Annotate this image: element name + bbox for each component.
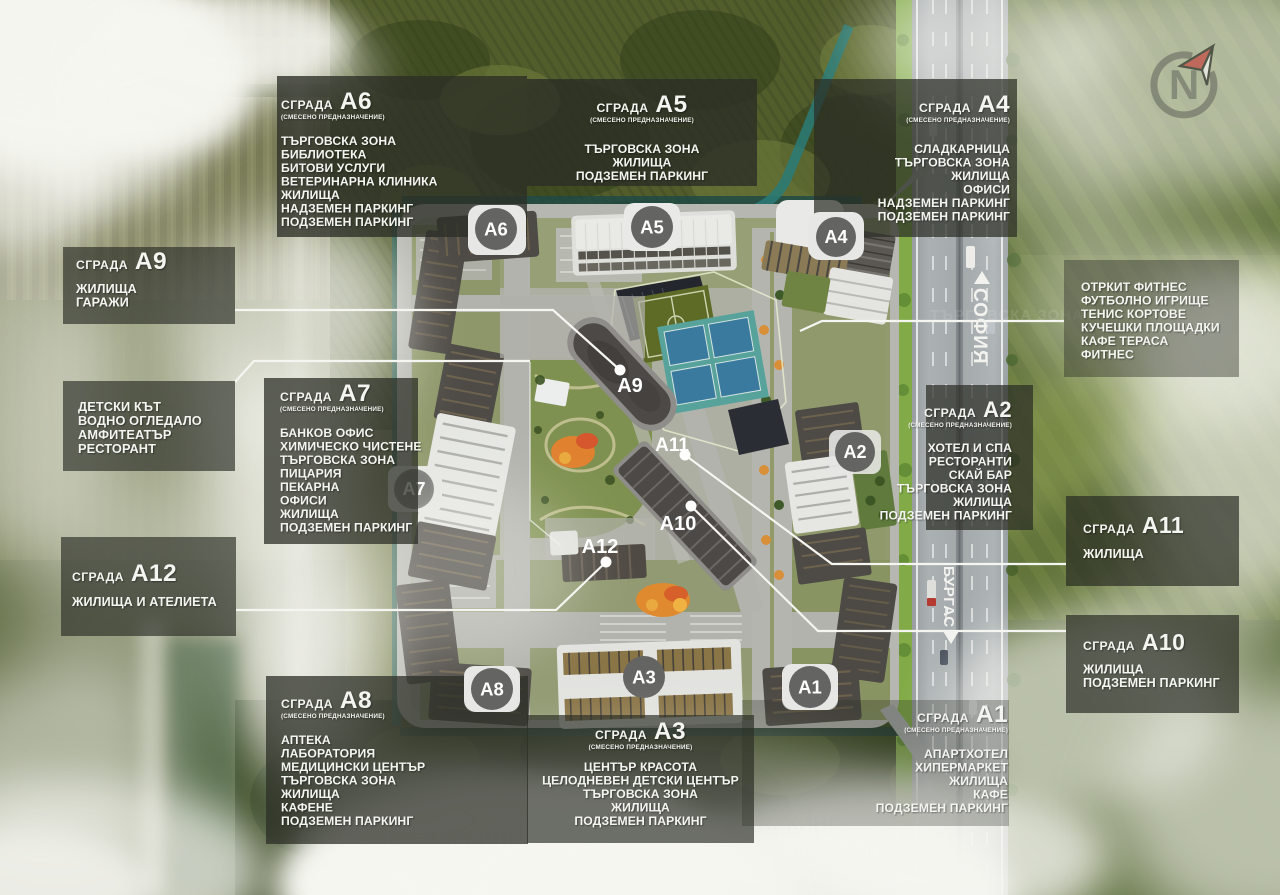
svg-text:ЦЕЛОДНЕВЕН ДЕТСКИ ЦЕНТЪР: ЦЕЛОДНЕВЕН ДЕТСКИ ЦЕНТЪР	[542, 774, 739, 788]
svg-text:А9: А9	[617, 375, 643, 397]
svg-text:ХИПЕРМАРКЕТ: ХИПЕРМАРКЕТ	[915, 761, 1008, 775]
svg-text:ПОДЗЕМЕН ПАРКИНГ: ПОДЗЕМЕН ПАРКИНГ	[280, 521, 412, 535]
svg-text:ТЪРГОВСКА ЗОНА: ТЪРГОВСКА ЗОНА	[280, 453, 395, 467]
svg-text:ХОТЕЛ И СПА: ХОТЕЛ И СПА	[928, 441, 1013, 455]
svg-text:ЖИЛИЩА: ЖИЛИЩА	[952, 495, 1012, 509]
svg-text:ПИЦАРИЯ: ПИЦАРИЯ	[280, 467, 342, 481]
svg-text:А10: А10	[660, 513, 697, 535]
svg-text:ПОДЗЕМЕН ПАРКИНГ: ПОДЗЕМЕН ПАРКИНГ	[281, 215, 413, 229]
svg-text:(СМЕСЕНО ПРЕДНАЗНАЧЕНИЕ): (СМЕСЕНО ПРЕДНАЗНАЧЕНИЕ)	[281, 114, 385, 121]
svg-text:А11: А11	[655, 435, 689, 456]
svg-text:КАФЕНЕ: КАФЕНЕ	[281, 801, 333, 815]
svg-text:КАФЕ: КАФЕ	[973, 788, 1008, 802]
svg-text:СОФИЯ: СОФИЯ	[969, 288, 990, 365]
svg-text:АПТЕКА: АПТЕКА	[281, 733, 331, 747]
svg-text:ТЪРГОВСКА ЗОНА: ТЪРГОВСКА ЗОНА	[897, 482, 1012, 496]
svg-text:(СМЕСЕНО ПРЕДНАЗНАЧЕНИЕ): (СМЕСЕНО ПРЕДНАЗНАЧЕНИЕ)	[590, 117, 694, 124]
svg-text:ЖИЛИЩА: ЖИЛИЩА	[280, 787, 340, 801]
svg-text:ЦЕНТЪР КРАСОТА: ЦЕНТЪР КРАСОТА	[584, 760, 697, 774]
svg-text:ФИТНЕС: ФИТНЕС	[1081, 348, 1134, 362]
svg-text:(СМЕСЕНО ПРЕДНАЗНАЧЕНИЕ): (СМЕСЕНО ПРЕДНАЗНАЧЕНИЕ)	[906, 117, 1010, 124]
svg-text:А12: А12	[582, 536, 619, 558]
svg-text:РЕСТОРАНТИ: РЕСТОРАНТИ	[929, 455, 1012, 469]
svg-text:ТЪРГОВСКА ЗОНА: ТЪРГОВСКА ЗОНА	[583, 787, 698, 801]
svg-text:ЖИЛИЩА: ЖИЛИЩА	[280, 188, 340, 202]
svg-text:(СМЕСЕНО ПРЕДНАЗНАЧЕНИЕ): (СМЕСЕНО ПРЕДНАЗНАЧЕНИЕ)	[589, 744, 693, 751]
svg-text:БИБЛИОТЕКА: БИБЛИОТЕКА	[281, 148, 367, 162]
svg-text:ХИМИЧЕСКО ЧИСТЕНЕ: ХИМИЧЕСКО ЧИСТЕНЕ	[280, 440, 422, 454]
svg-text:ЖИЛИЩА: ЖИЛИЩА	[610, 801, 670, 815]
svg-text:А1: А1	[798, 677, 822, 698]
svg-text:ЖИЛИЩА: ЖИЛИЩА	[1082, 547, 1144, 561]
svg-text:ТЪРГОВСКА ЗОНА: ТЪРГОВСКА ЗОНА	[281, 134, 396, 148]
svg-text:ТЕНИС КОРТОВЕ: ТЕНИС КОРТОВЕ	[1081, 307, 1186, 321]
svg-text:А3: А3	[632, 667, 656, 688]
svg-text:(СМЕСЕНО ПРЕДНАЗНАЧЕНИЕ): (СМЕСЕНО ПРЕДНАЗНАЧЕНИЕ)	[280, 406, 384, 413]
svg-text:ОФИСИ: ОФИСИ	[963, 183, 1010, 197]
svg-text:БАНКОВ ОФИС: БАНКОВ ОФИС	[280, 426, 374, 440]
svg-text:ПОДЗЕМЕН ПАРКИНГ: ПОДЗЕМЕН ПАРКИНГ	[576, 169, 708, 183]
svg-text:ЖИЛИЩА: ЖИЛИЩА	[950, 169, 1010, 183]
svg-text:(СМЕСЕНО ПРЕДНАЗНАЧЕНИЕ): (СМЕСЕНО ПРЕДНАЗНАЧЕНИЕ)	[908, 422, 1012, 429]
svg-text:ТЪРГОВСКА ЗОНА: ТЪРГОВСКА ЗОНА	[895, 156, 1010, 170]
svg-text:ПОДЗЕМЕН ПАРКИНГ: ПОДЗЕМЕН ПАРКИНГ	[876, 801, 1008, 815]
svg-text:А5: А5	[640, 217, 664, 238]
svg-text:ЖИЛИЩА: ЖИЛИЩА	[75, 282, 137, 296]
svg-text:СКАЙ БАР: СКАЙ БАР	[949, 467, 1012, 482]
svg-text:ОТРКИТ ФИТНЕС: ОТРКИТ ФИТНЕС	[1081, 280, 1187, 294]
svg-text:АПАРТХОТЕЛ: АПАРТХОТЕЛ	[924, 747, 1008, 761]
svg-text:СЛАДКАРНИЦА: СЛАДКАРНИЦА	[914, 142, 1010, 156]
svg-text:А8: А8	[480, 679, 504, 700]
svg-text:РЕСТОРАНТ: РЕСТОРАНТ	[78, 441, 156, 456]
svg-text:ДЕТСКИ КЪТ: ДЕТСКИ КЪТ	[78, 399, 161, 414]
svg-text:НАДЗЕМЕН ПАРКИНГ: НАДЗЕМЕН ПАРКИНГ	[878, 196, 1010, 210]
svg-text:(СМЕСЕНО ПРЕДНАЗНАЧЕНИЕ): (СМЕСЕНО ПРЕДНАЗНАЧЕНИЕ)	[904, 727, 1008, 734]
svg-text:А4: А4	[824, 227, 847, 247]
svg-text:ПОДЗЕМЕН ПАРКИНГ: ПОДЗЕМЕН ПАРКИНГ	[878, 210, 1010, 224]
svg-text:ТЪРГОВСКА ЗОНА: ТЪРГОВСКА ЗОНА	[281, 774, 396, 788]
svg-text:ТЪРГОВСКА ЗОНА: ТЪРГОВСКА ЗОНА	[584, 142, 699, 156]
svg-text:ГАРАЖИ: ГАРАЖИ	[76, 296, 129, 310]
svg-text:ВОДНО ОГЛЕДАЛО: ВОДНО ОГЛЕДАЛО	[78, 413, 202, 428]
svg-text:А2: А2	[843, 442, 866, 462]
svg-text:БИТОВИ УСЛУГИ: БИТОВИ УСЛУГИ	[281, 161, 385, 175]
svg-text:ФУТБОЛНО ИГРИЩЕ: ФУТБОЛНО ИГРИЩЕ	[1081, 294, 1209, 308]
svg-text:КАФЕ ТЕРАСА: КАФЕ ТЕРАСА	[1081, 334, 1168, 348]
svg-text:ВЕТЕРИНАРНА КЛИНИКА: ВЕТЕРИНАРНА КЛИНИКА	[281, 175, 438, 189]
svg-text:ПОДЗЕМЕН ПАРКИНГ: ПОДЗЕМЕН ПАРКИНГ	[1083, 676, 1220, 690]
svg-text:ПЕКАРНА: ПЕКАРНА	[280, 480, 340, 494]
svg-text:ЖИЛИЩА: ЖИЛИЩА	[612, 156, 672, 170]
svg-text:МЕДИЦИНСКИ ЦЕНТЪР: МЕДИЦИНСКИ ЦЕНТЪР	[281, 760, 425, 774]
svg-text:ПОДЗЕМЕН ПАРКИНГ: ПОДЗЕМЕН ПАРКИНГ	[880, 509, 1012, 523]
svg-text:БУРГАС: БУРГАС	[940, 566, 957, 628]
svg-text:ПОДЗЕМЕН ПАРКИНГ: ПОДЗЕМЕН ПАРКИНГ	[574, 814, 706, 828]
svg-text:(СМЕСЕНО ПРЕДНАЗНАЧЕНИЕ): (СМЕСЕНО ПРЕДНАЗНАЧЕНИЕ)	[281, 713, 385, 720]
svg-text:ЖИЛИЩА: ЖИЛИЩА	[279, 507, 339, 521]
svg-text:ЖИЛИЩА И АТЕЛИЕТА: ЖИЛИЩА И АТЕЛИЕТА	[71, 595, 217, 609]
svg-text:ПОДЗЕМЕН ПАРКИНГ: ПОДЗЕМЕН ПАРКИНГ	[281, 814, 413, 828]
svg-text:ЖИЛИЩА: ЖИЛИЩА	[1082, 663, 1144, 677]
svg-text:ОФИСИ: ОФИСИ	[280, 494, 327, 508]
svg-text:ЛАБОРАТОРИЯ: ЛАБОРАТОРИЯ	[281, 747, 375, 761]
svg-text:АМФИТЕАТЪР: АМФИТЕАТЪР	[78, 427, 172, 442]
svg-text:НАДЗЕМЕН ПАРКИНГ: НАДЗЕМЕН ПАРКИНГ	[281, 202, 413, 216]
svg-text:А6: А6	[484, 219, 508, 240]
svg-text:КУЧЕШКИ ПЛОЩАДКИ: КУЧЕШКИ ПЛОЩАДКИ	[1081, 321, 1220, 335]
svg-text:ЖИЛИЩА: ЖИЛИЩА	[948, 774, 1008, 788]
